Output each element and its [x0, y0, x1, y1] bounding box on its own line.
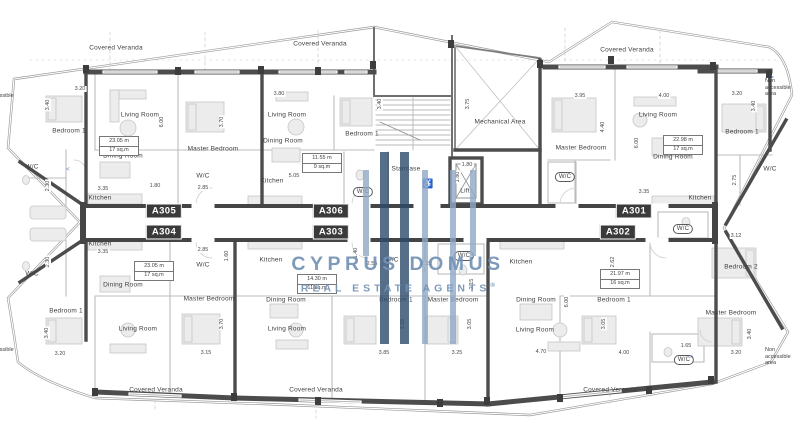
- room-label: Master Bedroom: [706, 310, 757, 317]
- dimension-label: 3.35: [97, 249, 110, 255]
- dimension-label: 1.60: [224, 250, 230, 263]
- room-label: Master Bedroom: [556, 145, 607, 152]
- room-label: Dining Room: [266, 297, 306, 304]
- room-label: Living Room: [121, 112, 159, 119]
- annotation-marker: ^: [690, 356, 693, 363]
- dimension-label: 4.00: [658, 93, 671, 99]
- dimension-label: 3.70: [219, 116, 225, 129]
- non-accessible-note: Non accessible area: [765, 78, 795, 98]
- room-label: Master Bedroom: [188, 146, 239, 153]
- room-label: Living Room: [268, 112, 306, 119]
- room-label: Kitchen: [688, 195, 711, 202]
- dimension-label: 3.20: [730, 350, 743, 356]
- room-label: Dining Room: [103, 282, 143, 289]
- dimension-label: 3.40: [751, 100, 757, 113]
- area-box-line1: 23.05 m: [100, 137, 138, 147]
- non-accessible-note: Non accessible area: [765, 347, 795, 367]
- area-box-line1: 22.98 m: [664, 136, 702, 146]
- label-layer: Covered VerandaCovered VerandaCovered Ve…: [0, 0, 796, 448]
- unit-label-a306: A306: [313, 204, 349, 219]
- room-label: Kitchen: [88, 195, 111, 202]
- unit-label-a303: A303: [313, 225, 349, 240]
- room-label: Kitchen: [259, 257, 282, 264]
- room-label: W/C: [25, 271, 38, 278]
- dimension-label: 2.85: [197, 247, 210, 253]
- dimension-label: 1.40: [353, 247, 359, 260]
- non-accessible-note: Non accessible Area: [0, 340, 18, 360]
- room-label: W/C: [196, 262, 209, 269]
- room-label: W/C: [353, 187, 373, 197]
- room-label: Master Bedroom: [428, 297, 479, 304]
- dimension-label: 5.05: [288, 173, 301, 179]
- room-label: Bedroom 1: [345, 131, 379, 138]
- dimension-label: 2.85: [197, 185, 210, 191]
- room-label: Kitchen: [509, 259, 532, 266]
- room-label: Bedroom 1: [52, 128, 86, 135]
- area-box: 21.97 m16 sq.m: [600, 269, 640, 289]
- unit-label-a304: A304: [146, 225, 182, 240]
- unit-label-a302: A302: [600, 225, 636, 240]
- dimension-label: 3.75: [465, 98, 471, 111]
- floor-plan-page: Covered VerandaCovered VerandaCovered Ve…: [0, 0, 796, 448]
- dimension-label: 4.40: [600, 121, 606, 134]
- room-label: W/C: [763, 166, 776, 173]
- dimension-label: 3.40: [44, 327, 50, 340]
- area-box-line2: 11 sq.m: [298, 285, 336, 294]
- room-label: Living Room: [119, 326, 157, 333]
- dimension-label: 2.15: [469, 278, 475, 291]
- dimension-label: 2.15: [420, 261, 433, 267]
- dimension-label: 3.40: [45, 99, 51, 112]
- area-box-line1: 11.55 m: [303, 154, 341, 164]
- dimension-label: 3.20: [54, 351, 67, 357]
- area-box-line1: 23.05 m: [135, 262, 173, 272]
- room-label: Dining Room: [516, 297, 556, 304]
- room-label: Bedroom 1: [725, 129, 759, 136]
- room-label: Kitchen: [88, 241, 111, 248]
- non-accessible-note: Non accessible Area: [0, 86, 18, 106]
- room-label: Bedroom 1: [379, 297, 413, 304]
- area-box: 11.55 m9 sq.m: [302, 153, 342, 173]
- area-box-line1: 14.30 m: [298, 275, 336, 285]
- area-box-line2: 9 sq.m: [303, 164, 341, 173]
- room-label: Dining Room: [263, 138, 303, 145]
- dimension-label: 6.00: [564, 296, 570, 309]
- room-label: Covered Veranda: [289, 387, 343, 394]
- annotation-marker: >: [770, 75, 774, 81]
- dimension-label: 6.00: [634, 137, 640, 150]
- room-label: Covered Veranda: [129, 387, 183, 394]
- accessibility-icon: ♿: [422, 180, 433, 189]
- room-label: W/C: [555, 172, 575, 182]
- room-label: Kitchen: [260, 178, 283, 185]
- room-label: W/C: [196, 173, 209, 180]
- room-label: Master Bedroom: [184, 296, 235, 303]
- area-box: 23.05 m17 sq.m: [134, 261, 174, 281]
- room-label: Living Room: [268, 326, 306, 333]
- dimension-label: 3.35: [638, 189, 651, 195]
- dimension-label: 3.85: [378, 350, 391, 356]
- dimension-label: 3.95: [574, 93, 587, 99]
- room-label: Mechanical Area: [474, 119, 525, 126]
- dimension-label: 3.40: [747, 328, 753, 341]
- dimension-label: 3.05: [601, 318, 607, 331]
- unit-label-a305: A305: [146, 204, 182, 219]
- room-label: W/C: [25, 164, 38, 171]
- dimension-label: 2.75: [732, 174, 738, 187]
- area-box-line1: 21.97 m: [601, 270, 639, 280]
- room-label: W/C: [454, 251, 474, 261]
- room-label: Covered Veranda: [583, 387, 637, 394]
- room-label: Covered Veranda: [293, 41, 347, 48]
- dimension-label: 4.00: [618, 350, 631, 356]
- room-label: Bedroom 1: [597, 297, 631, 304]
- room-label: Bedroom 1: [49, 308, 83, 315]
- dimension-label: 6.00: [159, 116, 165, 129]
- dimension-label: 1.80: [455, 171, 461, 184]
- area-box: 22.98 m17 sq.m: [663, 135, 703, 155]
- room-label: W/C: [385, 257, 398, 264]
- room-label: Lift: [460, 188, 469, 195]
- dimension-label: 3.05: [400, 318, 406, 331]
- room-label: W/C: [673, 224, 693, 234]
- dimension-label: 1.65: [680, 343, 693, 349]
- room-label: Staircase: [392, 166, 421, 173]
- dimension-label: 3.12: [730, 233, 743, 239]
- dimension-label: 3.35: [97, 186, 110, 192]
- unit-label-a301: A301: [616, 204, 652, 219]
- dimension-label: 2.30: [45, 256, 51, 269]
- dimension-label: 3.40: [377, 98, 383, 111]
- room-label: Living Room: [516, 327, 554, 334]
- area-box: 14.30 m11 sq.m: [297, 274, 337, 294]
- area-box-line2: 17 sq.m: [135, 272, 173, 281]
- room-label: Living Room: [639, 112, 677, 119]
- room-label: Covered Veranda: [600, 47, 654, 54]
- dimension-label: 2.30: [45, 180, 51, 193]
- dimension-label: 3.25: [451, 350, 464, 356]
- area-box-line2: 17 sq.m: [100, 147, 138, 156]
- dimension-label: 3.70: [219, 318, 225, 331]
- area-box-line2: 16 sq.m: [601, 280, 639, 289]
- area-box: 23.05 m17 sq.m: [99, 136, 139, 156]
- dimension-label: 2.62: [610, 256, 616, 269]
- dimension-label: 4.70: [535, 349, 548, 355]
- dimension-label: 3.20: [74, 86, 87, 92]
- room-label: Bedroom 2: [724, 264, 758, 271]
- dimension-label: 3.20: [731, 91, 744, 97]
- room-label: Covered Veranda: [89, 45, 143, 52]
- dimension-label: 3.05: [467, 318, 473, 331]
- dimension-label: 1.80: [461, 162, 474, 168]
- dimension-label: 3.80: [273, 91, 286, 97]
- dimension-label: 2.55: [366, 261, 379, 267]
- dimension-label: 3.15: [200, 350, 213, 356]
- annotation-marker: <: [66, 167, 70, 173]
- area-box-line2: 17 sq.m: [664, 146, 702, 155]
- dimension-label: 1.80: [149, 183, 162, 189]
